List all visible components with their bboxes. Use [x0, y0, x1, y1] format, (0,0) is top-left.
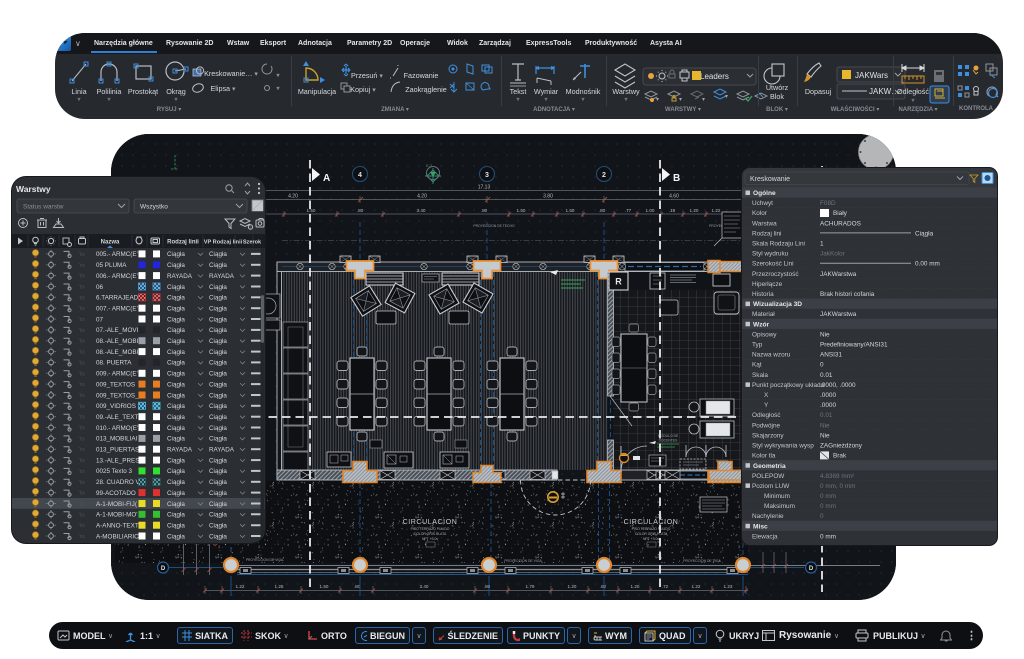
svg-text:0: 0: [820, 513, 824, 520]
svg-text:Ciągła: Ciągła: [209, 436, 227, 443]
svg-text:JAKWarstwa: JAKWarstwa: [820, 271, 857, 278]
svg-text:009_TEXTOS_: 009_TEXTOS_: [96, 392, 139, 399]
svg-text:Ciągła: Ciągła: [209, 523, 227, 530]
svg-text:Ciągła: Ciągła: [167, 436, 185, 443]
svg-text:17.13: 17.13: [478, 185, 491, 191]
svg-text:'to: 'to: [79, 415, 85, 421]
svg-text:Elewacja: Elewacja: [752, 533, 778, 540]
svg-text:0 mm: 0 mm: [820, 503, 836, 510]
svg-text:'to: 'to: [79, 523, 85, 529]
svg-text:Nazwa: Nazwa: [101, 240, 120, 246]
svg-text:Ciągła: Ciągła: [167, 425, 185, 432]
svg-text:Rodzaj lini: Rodzaj lini: [752, 230, 781, 237]
svg-text:Geometria: Geometria: [753, 463, 786, 470]
svg-text:0.00 mm: 0.00 mm: [915, 261, 940, 268]
svg-text:ZAGnieżdżony: ZAGnieżdżony: [820, 443, 863, 450]
svg-text:'to: 'to: [79, 274, 85, 280]
svg-text:Nazwa wzoru: Nazwa wzoru: [752, 352, 791, 359]
svg-text:Ciągła: Ciągła: [209, 457, 227, 464]
svg-text:Przezroczystość: Przezroczystość: [752, 271, 799, 278]
svg-text:JakKolor: JakKolor: [820, 251, 846, 258]
svg-text:PROYECCION DE TECHO: PROYECCION DE TECHO: [473, 224, 515, 228]
svg-text:Leaders: Leaders: [700, 72, 729, 81]
svg-text:'to: 'to: [79, 371, 85, 377]
svg-text:'to: 'to: [79, 426, 85, 432]
svg-text:4.20: 4.20: [417, 194, 427, 200]
svg-text:Kolor tla: Kolor tla: [752, 453, 776, 460]
svg-text:RAYADA: RAYADA: [209, 447, 235, 454]
svg-text:08.-ALE_MOBI: 08.-ALE_MOBI: [96, 349, 139, 356]
svg-text:'to: 'to: [79, 404, 85, 410]
svg-text:Ciągła: Ciągła: [209, 479, 227, 486]
svg-text:Maksimum: Maksimum: [764, 503, 795, 510]
svg-text:1.23: 1.23: [724, 584, 733, 589]
svg-text:Ciągła: Ciągła: [167, 392, 185, 399]
svg-text:'to: 'to: [79, 328, 85, 334]
svg-text:4.20: 4.20: [288, 194, 298, 200]
svg-text:Skala Rodzaju Lini: Skala Rodzaju Lini: [752, 241, 805, 248]
svg-text:1.50: 1.50: [566, 208, 575, 213]
svg-text:Ciągła: Ciągła: [209, 316, 227, 323]
svg-text:Ciągła: Ciągła: [167, 262, 185, 269]
svg-text:Poziom LUW: Poziom LUW: [752, 483, 790, 490]
svg-text:Ciągła: Ciągła: [167, 295, 185, 302]
svg-text:A: A: [323, 173, 330, 184]
svg-text:06: 06: [96, 284, 104, 291]
svg-text:08.-ALE_MOBI: 08.-ALE_MOBI: [96, 338, 139, 345]
svg-text:.82: .82: [600, 584, 607, 589]
svg-text:'to: 'to: [79, 382, 85, 388]
svg-text:Rodzaj linii: Rodzaj linii: [167, 240, 199, 246]
svg-text:X: X: [764, 392, 769, 399]
svg-text:28. CUADRO V: 28. CUADRO V: [96, 479, 141, 486]
svg-text:'to: 'to: [79, 295, 85, 301]
svg-text:Ciągła: Ciągła: [167, 316, 185, 323]
svg-text:Kolor: Kolor: [752, 210, 768, 217]
svg-text:NPT +3.0s: NPT +3.0s: [422, 537, 438, 541]
svg-text:0025 Texto 3: 0025 Texto 3: [96, 468, 132, 475]
svg-text:Ciągła: Ciągła: [167, 533, 185, 540]
svg-text:Ciągła: Ciągła: [167, 403, 185, 410]
svg-text:Podwójne: Podwójne: [752, 422, 781, 429]
svg-text:'to: 'to: [79, 263, 85, 269]
svg-text:R: R: [615, 277, 622, 287]
svg-text:1.20: 1.20: [568, 584, 577, 589]
svg-text:▾: ▾: [679, 97, 682, 103]
svg-text:009.- ARMC(E': 009.- ARMC(E': [96, 371, 138, 378]
svg-text:MODULO DE: MODULO DE: [658, 434, 679, 438]
svg-text:Ciągła: Ciągła: [915, 230, 934, 237]
svg-text:4.8369 mm²: 4.8369 mm²: [820, 473, 854, 480]
svg-text:COLOR GRIS PLATA: COLOR GRIS PLATA: [635, 532, 668, 536]
svg-text:0 mm: 0 mm: [820, 533, 836, 540]
svg-text:.77: .77: [625, 208, 632, 213]
svg-text:'to: 'to: [79, 512, 85, 518]
svg-text:'to: 'to: [79, 317, 85, 323]
svg-text:'to: 'to: [79, 480, 85, 486]
svg-text:1.50: 1.50: [307, 208, 316, 213]
svg-text:Nie: Nie: [820, 432, 830, 439]
svg-text:99-ACOTADO: 99-ACOTADO: [96, 490, 136, 497]
svg-text:Punkt początkowy układu: Punkt początkowy układu: [752, 382, 825, 389]
svg-text:010.- ARMO(E': 010.- ARMO(E': [96, 425, 138, 432]
svg-text:0.01: 0.01: [820, 412, 833, 419]
svg-text:PROYECCION DE VIGA.: PROYECCION DE VIGA.: [246, 558, 284, 562]
svg-text:Ciągła: Ciągła: [167, 414, 185, 421]
svg-text:Ciągła: Ciągła: [209, 468, 227, 475]
svg-text:'to: 'to: [79, 252, 85, 258]
svg-text:Ciągła: Ciągła: [167, 479, 185, 486]
svg-text:NPT +3.0s: NPT +3.0s: [643, 537, 659, 541]
svg-text:1.00: 1.00: [646, 208, 655, 213]
svg-text:Skajarzony: Skajarzony: [752, 432, 784, 439]
svg-text:Szerok: Szerok: [243, 240, 262, 246]
svg-text:Ciągła: Ciągła: [209, 349, 227, 356]
svg-text:CIRCULACION: CIRCULACION: [624, 519, 679, 526]
svg-text:1.22: 1.22: [692, 584, 701, 589]
svg-text:PISO TERRAZO PULIDO: PISO TERRAZO PULIDO: [632, 527, 671, 531]
svg-text:3.40: 3.40: [420, 584, 429, 589]
svg-text:Typ: Typ: [752, 342, 763, 349]
svg-text:07: 07: [96, 316, 104, 323]
svg-text:D: D: [809, 566, 814, 572]
svg-text:Biały: Biały: [833, 210, 848, 217]
svg-text:1.22: 1.22: [712, 208, 721, 213]
svg-text:Wzór: Wzór: [753, 321, 770, 328]
svg-text:▾: ▾: [725, 94, 728, 100]
svg-text:Ciągła: Ciągła: [167, 251, 185, 258]
svg-text:Ciągła: Ciągła: [209, 381, 227, 388]
svg-text:.0000: .0000: [820, 402, 836, 409]
svg-text:3: 3: [485, 172, 489, 179]
svg-text:.72: .72: [662, 584, 669, 589]
svg-text:Ciągła: Ciągła: [209, 306, 227, 313]
svg-text:.0000, .0000: .0000, .0000: [820, 382, 856, 389]
svg-text:POLEPOW: POLEPOW: [752, 473, 785, 480]
svg-text:Armario: Armario: [716, 459, 729, 463]
svg-text:Ciągła: Ciągła: [209, 392, 227, 399]
svg-text:3.80: 3.80: [543, 194, 553, 200]
svg-text:'to: 'to: [79, 285, 85, 291]
svg-text:006.- ARMC(E': 006.- ARMC(E': [96, 273, 138, 280]
svg-text:JAKWars: JAKWars: [855, 71, 888, 80]
svg-text:Status warstw: Status warstw: [23, 204, 64, 211]
svg-text:'to: 'to: [79, 502, 85, 508]
svg-text:Nie: Nie: [820, 422, 830, 429]
svg-text:2: 2: [602, 172, 606, 179]
svg-text:Historia: Historia: [752, 291, 774, 298]
svg-text:13.-ALE_PRES: 13.-ALE_PRES: [96, 457, 139, 464]
svg-text:Ciągła: Ciągła: [209, 512, 227, 519]
svg-text:Styl wykrywania wysp: Styl wykrywania wysp: [752, 443, 814, 450]
svg-text:PROYECCION DE VIGA: PROYECCION DE VIGA: [683, 559, 721, 563]
svg-text:Ciągła: Ciągła: [167, 306, 185, 313]
svg-text:Ciągła: Ciągła: [209, 262, 227, 269]
svg-text:Ciągła: Ciągła: [167, 490, 185, 497]
svg-text:Ciągła: Ciągła: [167, 457, 185, 464]
svg-text:'to: 'to: [79, 350, 85, 356]
svg-text:Wszystko: Wszystko: [140, 204, 168, 211]
svg-text:4: 4: [358, 172, 362, 179]
svg-text:'to: 'to: [79, 469, 85, 475]
svg-text:08. PUERTA: 08. PUERTA: [96, 360, 132, 367]
svg-text:Ciągła: Ciągła: [209, 501, 227, 508]
svg-text:0 mm: 0 mm: [820, 493, 836, 500]
svg-text:0.01: 0.01: [820, 372, 833, 379]
svg-text:005.- ARMC(E': 005.- ARMC(E': [96, 251, 138, 258]
svg-text:RAYADA: RAYADA: [167, 447, 193, 454]
svg-text:05 PLUMA: 05 PLUMA: [96, 262, 127, 269]
svg-text:JAKW…: JAKW…: [869, 87, 899, 96]
svg-text:A-1-MOBI-MO': A-1-MOBI-MO': [96, 512, 137, 519]
svg-text:0: 0: [820, 362, 824, 369]
svg-text:Ciągła: Ciągła: [209, 284, 227, 291]
svg-text:4.60: 4.60: [669, 194, 679, 200]
svg-text:Ciągła: Ciągła: [209, 414, 227, 421]
svg-text:Hiperłącze: Hiperłącze: [752, 281, 783, 288]
svg-text:Ciągła: Ciągła: [167, 468, 185, 475]
svg-text:Ciągła: Ciągła: [167, 349, 185, 356]
svg-text:Kąt: Kąt: [752, 362, 762, 369]
svg-text:A-1-MOBI-FIJ(: A-1-MOBI-FIJ(: [96, 501, 138, 508]
svg-text:Ciągła: Ciągła: [167, 381, 185, 388]
svg-text:6.TARRAJEAD: 6.TARRAJEAD: [96, 295, 139, 302]
svg-text:▾: ▾: [702, 97, 705, 103]
svg-text:ACHURADOS: ACHURADOS: [820, 220, 861, 227]
svg-text:Ciągła: Ciągła: [209, 360, 227, 367]
svg-text:Ogólne: Ogólne: [753, 190, 776, 197]
svg-text:3.40: 3.40: [417, 208, 426, 213]
svg-text:'to: 'to: [79, 360, 85, 366]
svg-text:F08D: F08D: [820, 200, 836, 207]
svg-text:.19: .19: [669, 208, 676, 213]
svg-text:Ciągła: Ciągła: [167, 512, 185, 519]
svg-text:1.50: 1.50: [517, 208, 526, 213]
svg-text:Nachylenie: Nachylenie: [752, 513, 784, 520]
svg-text:Ciągła: Ciągła: [209, 327, 227, 334]
svg-text:07.-ALE_MOVI: 07.-ALE_MOVI: [96, 327, 139, 334]
svg-text:'to: 'to: [79, 447, 85, 453]
svg-text:JAKWarstwa: JAKWarstwa: [820, 311, 857, 318]
svg-text:A-ANNO-TEXT: A-ANNO-TEXT: [96, 523, 139, 530]
svg-text:ANSI31: ANSI31: [820, 352, 842, 359]
svg-text:Ciągła: Ciągła: [167, 284, 185, 291]
svg-text:Predefiniowany/ANSI31: Predefiniowany/ANSI31: [820, 342, 888, 349]
svg-text:009_TEXTOS: 009_TEXTOS: [96, 381, 135, 388]
svg-text:Ciągła: Ciągła: [209, 533, 227, 540]
svg-text:Wizualizacja 3D: Wizualizacja 3D: [753, 301, 802, 308]
svg-text:'to: 'to: [79, 393, 85, 399]
svg-text:Styl wydruku: Styl wydruku: [752, 251, 789, 258]
svg-text:▾: ▾: [656, 97, 659, 103]
svg-text:1.22: 1.22: [236, 584, 245, 589]
svg-text:'to: 'to: [79, 458, 85, 464]
svg-text:'to: 'to: [79, 339, 85, 345]
svg-text:Skala: Skala: [752, 372, 768, 379]
svg-text:1: 1: [820, 241, 824, 248]
svg-text:Ciągła: Ciągła: [167, 501, 185, 508]
svg-text:B: B: [673, 173, 680, 184]
svg-text:Brak histori cofania: Brak histori cofania: [820, 291, 875, 298]
svg-text:RAYADA: RAYADA: [167, 273, 193, 280]
svg-text:PISO TERRAZO PULIDO: PISO TERRAZO PULIDO: [411, 527, 450, 531]
svg-text:.80: .80: [357, 208, 364, 213]
svg-text:007.- ARMC(E': 007.- ARMC(E': [96, 306, 138, 313]
svg-text:Ciągła: Ciągła: [167, 371, 185, 378]
svg-text:Uchwyt: Uchwyt: [752, 200, 773, 207]
svg-text:.80: .80: [599, 208, 606, 213]
svg-text:009_VIDRIOS: 009_VIDRIOS: [96, 403, 136, 410]
svg-text:Warstwa: Warstwa: [752, 220, 777, 227]
svg-text:'to: 'to: [79, 534, 85, 540]
svg-text:'to: 'to: [79, 491, 85, 497]
svg-text:'to: 'to: [79, 436, 85, 442]
svg-text:VP Rodzaj linii: VP Rodzaj linii: [204, 240, 243, 246]
svg-text:Ciągła: Ciągła: [209, 295, 227, 302]
svg-text:1.25: 1.25: [275, 584, 284, 589]
svg-text:.0000: .0000: [820, 392, 836, 399]
svg-text:Ciągła: Ciągła: [209, 251, 227, 258]
svg-text:Ciągła: Ciągła: [209, 403, 227, 410]
svg-text:Ciągła: Ciągła: [167, 338, 185, 345]
svg-text:CIRCULACION: CIRCULACION: [403, 519, 458, 526]
svg-text:Opisowy: Opisowy: [752, 331, 777, 338]
svg-text:Nie: Nie: [820, 331, 830, 338]
svg-text:Ciągła: Ciągła: [167, 360, 185, 367]
svg-text:D: D: [161, 566, 166, 572]
svg-text:COLOR GRIS PLATA: COLOR GRIS PLATA: [414, 532, 447, 536]
svg-text:Ciągła: Ciągła: [209, 338, 227, 345]
svg-text:Misc: Misc: [753, 523, 768, 530]
svg-text:Odległość: Odległość: [752, 412, 781, 419]
svg-text:'to: 'to: [79, 306, 85, 312]
svg-text:Kreskowanie: Kreskowanie: [750, 176, 790, 183]
svg-text:DOCENTES: DOCENTES: [659, 439, 679, 443]
svg-text:1.50: 1.50: [320, 584, 329, 589]
svg-text:0 mm, 0 mm: 0 mm, 0 mm: [820, 483, 856, 490]
svg-text:1.79: 1.79: [526, 584, 535, 589]
svg-text:09.-ALE_TEXTI: 09.-ALE_TEXTI: [96, 414, 140, 421]
svg-text:1.20: 1.20: [631, 584, 640, 589]
svg-text:Ciągła: Ciągła: [167, 523, 185, 530]
svg-text:Brak: Brak: [833, 453, 847, 460]
svg-text:.80: .80: [481, 208, 488, 213]
svg-text:Warstwy: Warstwy: [16, 184, 51, 194]
svg-text:Ciągła: Ciągła: [167, 327, 185, 334]
svg-text:Materiał: Materiał: [752, 311, 775, 318]
svg-text:.80: .80: [484, 584, 491, 589]
svg-text:RAYADA: RAYADA: [209, 273, 235, 280]
svg-text:1.20: 1.20: [690, 208, 699, 213]
svg-text:Ciągła: Ciągła: [209, 425, 227, 432]
svg-text:Ciągła: Ciągła: [209, 371, 227, 378]
svg-text:A-MOBILIARIC: A-MOBILIARIC: [96, 533, 139, 540]
svg-text:Szerokość Lini: Szerokość Lini: [752, 261, 794, 268]
svg-text:013_MOBILIAI: 013_MOBILIAI: [96, 436, 138, 443]
svg-text:Minimum: Minimum: [764, 493, 790, 500]
svg-text:Y: Y: [764, 402, 769, 409]
svg-text:Ciągła: Ciągła: [209, 490, 227, 497]
svg-text:013_PUERTAS: 013_PUERTAS: [96, 447, 139, 454]
svg-text:PROYECCION DE VIGA: PROYECCION DE VIGA: [504, 559, 542, 563]
